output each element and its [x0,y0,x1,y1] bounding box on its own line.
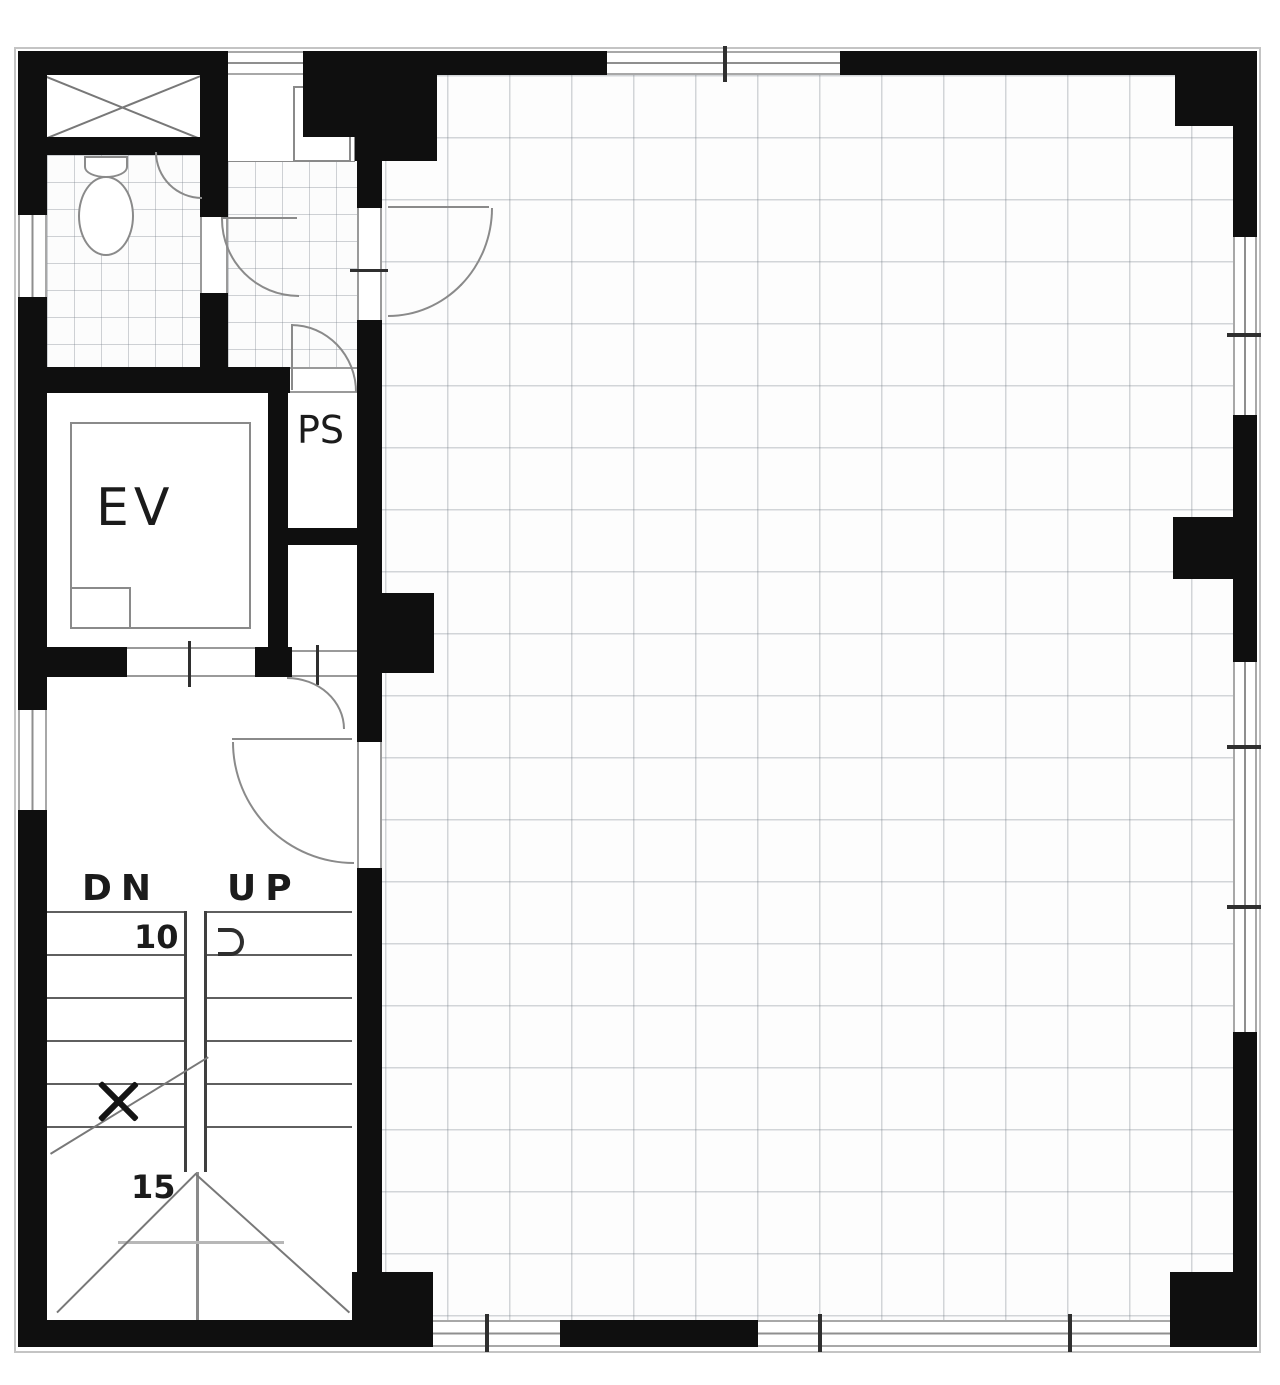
wall-segment [268,367,288,647]
wall-segment [200,155,228,217]
pillar [303,51,437,137]
wall-segment [357,160,382,208]
wall-segment [18,367,290,393]
tick-mark [1227,745,1261,749]
wall-segment [255,647,292,677]
wall-segment [1233,415,1257,662]
pillar [355,137,437,161]
elevator-counterweight [70,587,131,629]
door-leaf [291,324,293,390]
stair-divider [184,911,207,1172]
tick-mark [316,645,319,685]
pier [377,593,434,673]
wall-segment [18,51,47,215]
closet-floor [290,545,357,652]
pier [1173,517,1235,579]
window [1233,662,1257,1032]
tick-mark [818,1314,822,1352]
toilet-tank [84,156,128,178]
elevator-label: EV [96,478,174,538]
door-leaf [221,217,297,219]
tick-mark [350,269,388,272]
wall-segment [18,1320,358,1347]
tick-mark [723,46,727,82]
window [1233,237,1257,415]
step-number-bottom: 15 [131,1168,176,1206]
tick-mark [1068,1314,1072,1352]
wall-segment [357,868,382,1274]
door-leaf [232,738,352,740]
door-opening [357,742,382,868]
wall-segment [18,51,228,75]
stair-landing-line [118,1241,284,1244]
window [228,51,303,75]
step-number-top: 10 [134,918,179,956]
up-arrow-origin-mark [218,928,244,956]
corner-column [1170,1272,1257,1347]
wall-segment [18,810,47,1347]
pipe-shaft-label: PS [297,408,344,452]
window [433,1320,560,1347]
tick-mark [1227,905,1261,909]
tick-mark [1227,333,1261,337]
door-opening [357,208,382,320]
window [18,215,47,297]
wall-segment [18,647,127,677]
wall-step [352,1272,433,1347]
tick-mark [485,1314,489,1352]
door-leaf [388,206,489,208]
wall-segment [357,320,382,742]
main-room-floor [382,75,1233,1320]
elevator-door-opening [127,647,255,677]
stair-center-line [196,1172,199,1320]
wall-segment [840,51,1175,75]
wall-segment [560,1320,758,1347]
stair-down-label: DN [82,868,160,909]
tick-mark [188,641,191,687]
window [18,710,47,810]
wall-segment [268,528,357,545]
floor-plan: EV PS DN UP 10 15 [0,0,1280,1385]
stair-up-label: UP [227,868,301,909]
door-opening [292,650,357,677]
wall-segment [1233,51,1257,237]
toilet-bowl [78,176,134,256]
